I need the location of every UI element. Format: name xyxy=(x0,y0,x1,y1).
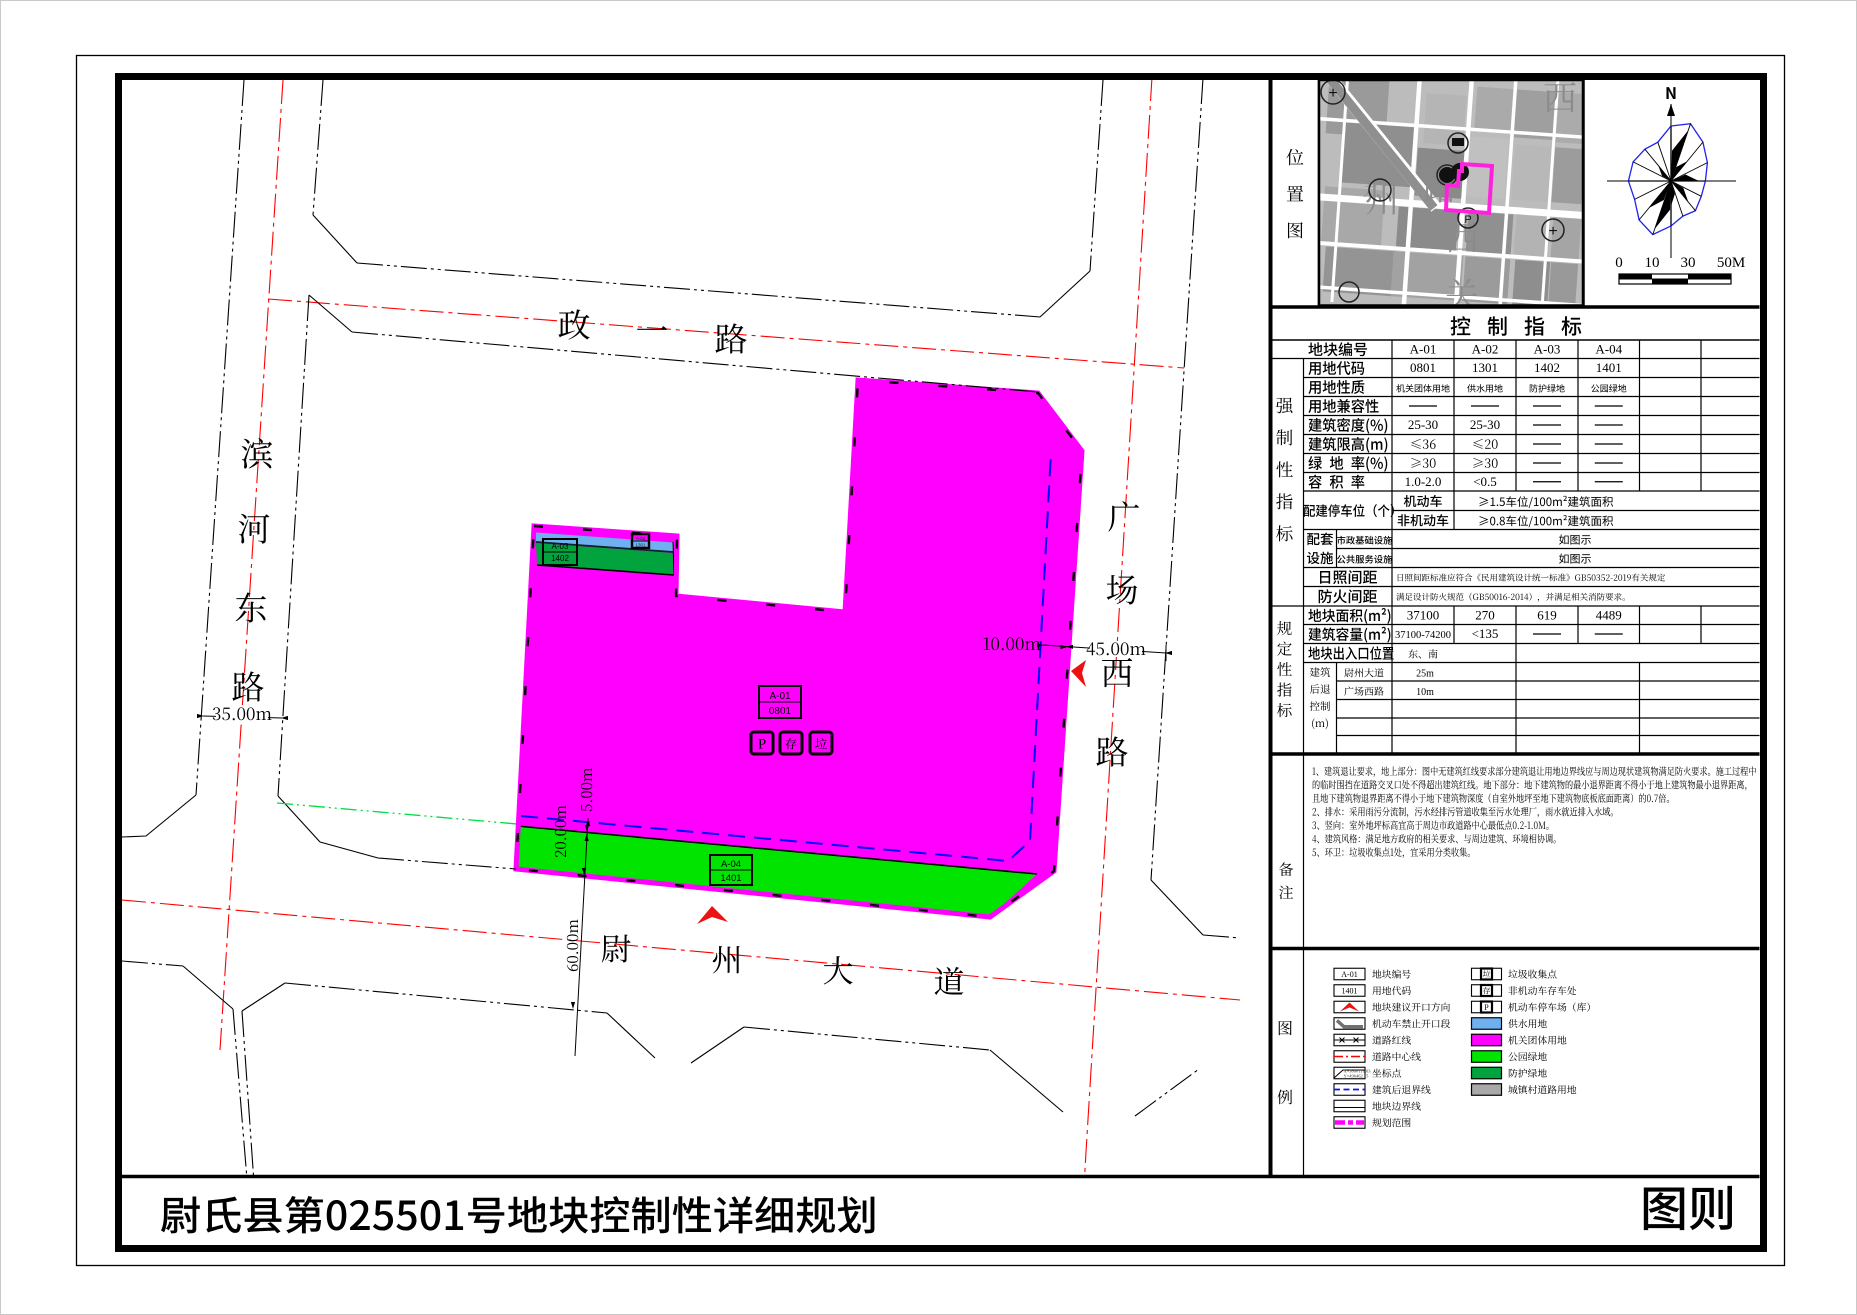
svg-text:1401: 1401 xyxy=(1342,986,1358,995)
svg-text:4489: 4489 xyxy=(1596,607,1622,622)
svg-text:50M: 50M xyxy=(1717,255,1745,271)
svg-text:25m: 25m xyxy=(1416,668,1434,679)
svg-text:+: + xyxy=(1328,85,1337,102)
svg-text:A-04: A-04 xyxy=(1595,341,1622,356)
svg-text:10m: 10m xyxy=(1416,687,1434,698)
svg-text:1.0-2.0: 1.0-2.0 xyxy=(1405,474,1442,489)
svg-text:A-04: A-04 xyxy=(721,859,741,870)
svg-text:10: 10 xyxy=(1645,255,1660,271)
svg-text:A-01: A-01 xyxy=(1410,341,1437,356)
svg-text:270: 270 xyxy=(1475,607,1495,622)
svg-text:A-03: A-03 xyxy=(1534,341,1561,356)
svg-text:0801: 0801 xyxy=(1410,360,1436,375)
svg-text:P: P xyxy=(758,737,766,753)
svg-text:1402: 1402 xyxy=(551,554,569,563)
svg-text:1401: 1401 xyxy=(1596,360,1622,375)
svg-text:+: + xyxy=(1548,223,1557,240)
svg-text:619: 619 xyxy=(1537,607,1557,622)
svg-text:A-01: A-01 xyxy=(769,691,791,702)
svg-text:1401: 1401 xyxy=(720,873,741,884)
svg-text:1301: 1301 xyxy=(635,543,646,548)
svg-text:P: P xyxy=(1464,214,1471,226)
svg-text:<135: <135 xyxy=(1472,626,1499,641)
svg-text:25-30: 25-30 xyxy=(1408,417,1438,432)
svg-text:Y=496462.15: Y=496462.15 xyxy=(1344,1074,1370,1079)
svg-text:A-03: A-03 xyxy=(552,542,569,551)
svg-text:0: 0 xyxy=(1615,255,1623,271)
svg-text:A-02: A-02 xyxy=(636,536,646,541)
svg-text:1402: 1402 xyxy=(1534,360,1560,375)
svg-text:30: 30 xyxy=(1681,255,1696,271)
svg-text:P: P xyxy=(1484,1003,1489,1012)
svg-text:A-02: A-02 xyxy=(1472,341,1499,356)
svg-text:37100-74200: 37100-74200 xyxy=(1395,630,1451,641)
svg-text:25-30: 25-30 xyxy=(1470,417,1500,432)
svg-text:1301: 1301 xyxy=(1472,360,1498,375)
svg-text:37100: 37100 xyxy=(1407,607,1440,622)
svg-text:<0.5: <0.5 xyxy=(1473,474,1497,489)
svg-text:A-01: A-01 xyxy=(1341,970,1357,979)
svg-text:0801: 0801 xyxy=(769,706,792,717)
